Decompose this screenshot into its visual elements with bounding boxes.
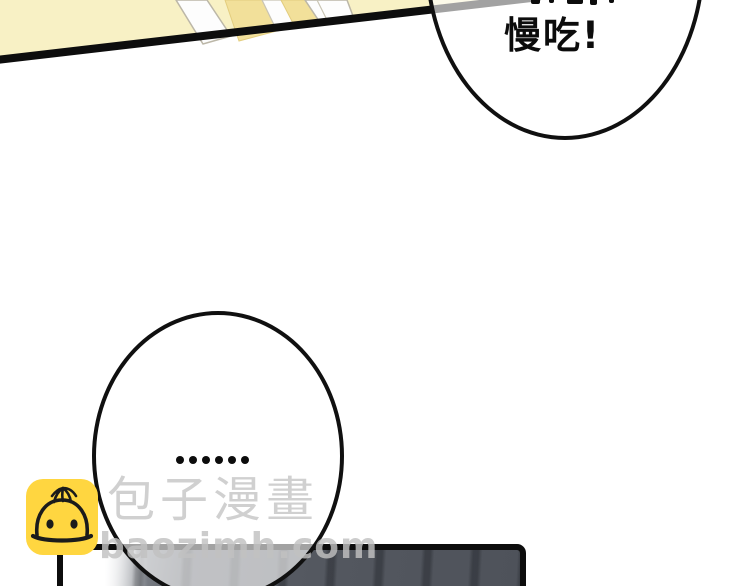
watermark-site-name: 包子漫畫 xyxy=(107,474,319,527)
clipped-text-fragment xyxy=(567,0,583,4)
ellipsis-dot xyxy=(202,456,210,464)
ellipsis-dots xyxy=(176,456,249,464)
speech-bubble-top-text: 慢吃! xyxy=(504,5,601,59)
ellipsis-dot xyxy=(228,456,236,464)
baozi-bun-icon xyxy=(25,478,99,556)
ellipsis-dot xyxy=(241,456,249,464)
ellipsis-dot xyxy=(215,456,223,464)
ellipsis-dot xyxy=(189,456,197,464)
watermark-site-url[interactable]: baozimh.com xyxy=(99,526,379,567)
clipped-text-fragment xyxy=(609,0,614,3)
comic-page: 慢吃! 包子漫畫 baozimh.com xyxy=(0,0,750,586)
clipped-text-fragment xyxy=(549,0,554,3)
clipped-text-fragment xyxy=(590,0,597,5)
ellipsis-dot xyxy=(176,456,184,464)
clipped-text-fragment xyxy=(531,0,540,4)
